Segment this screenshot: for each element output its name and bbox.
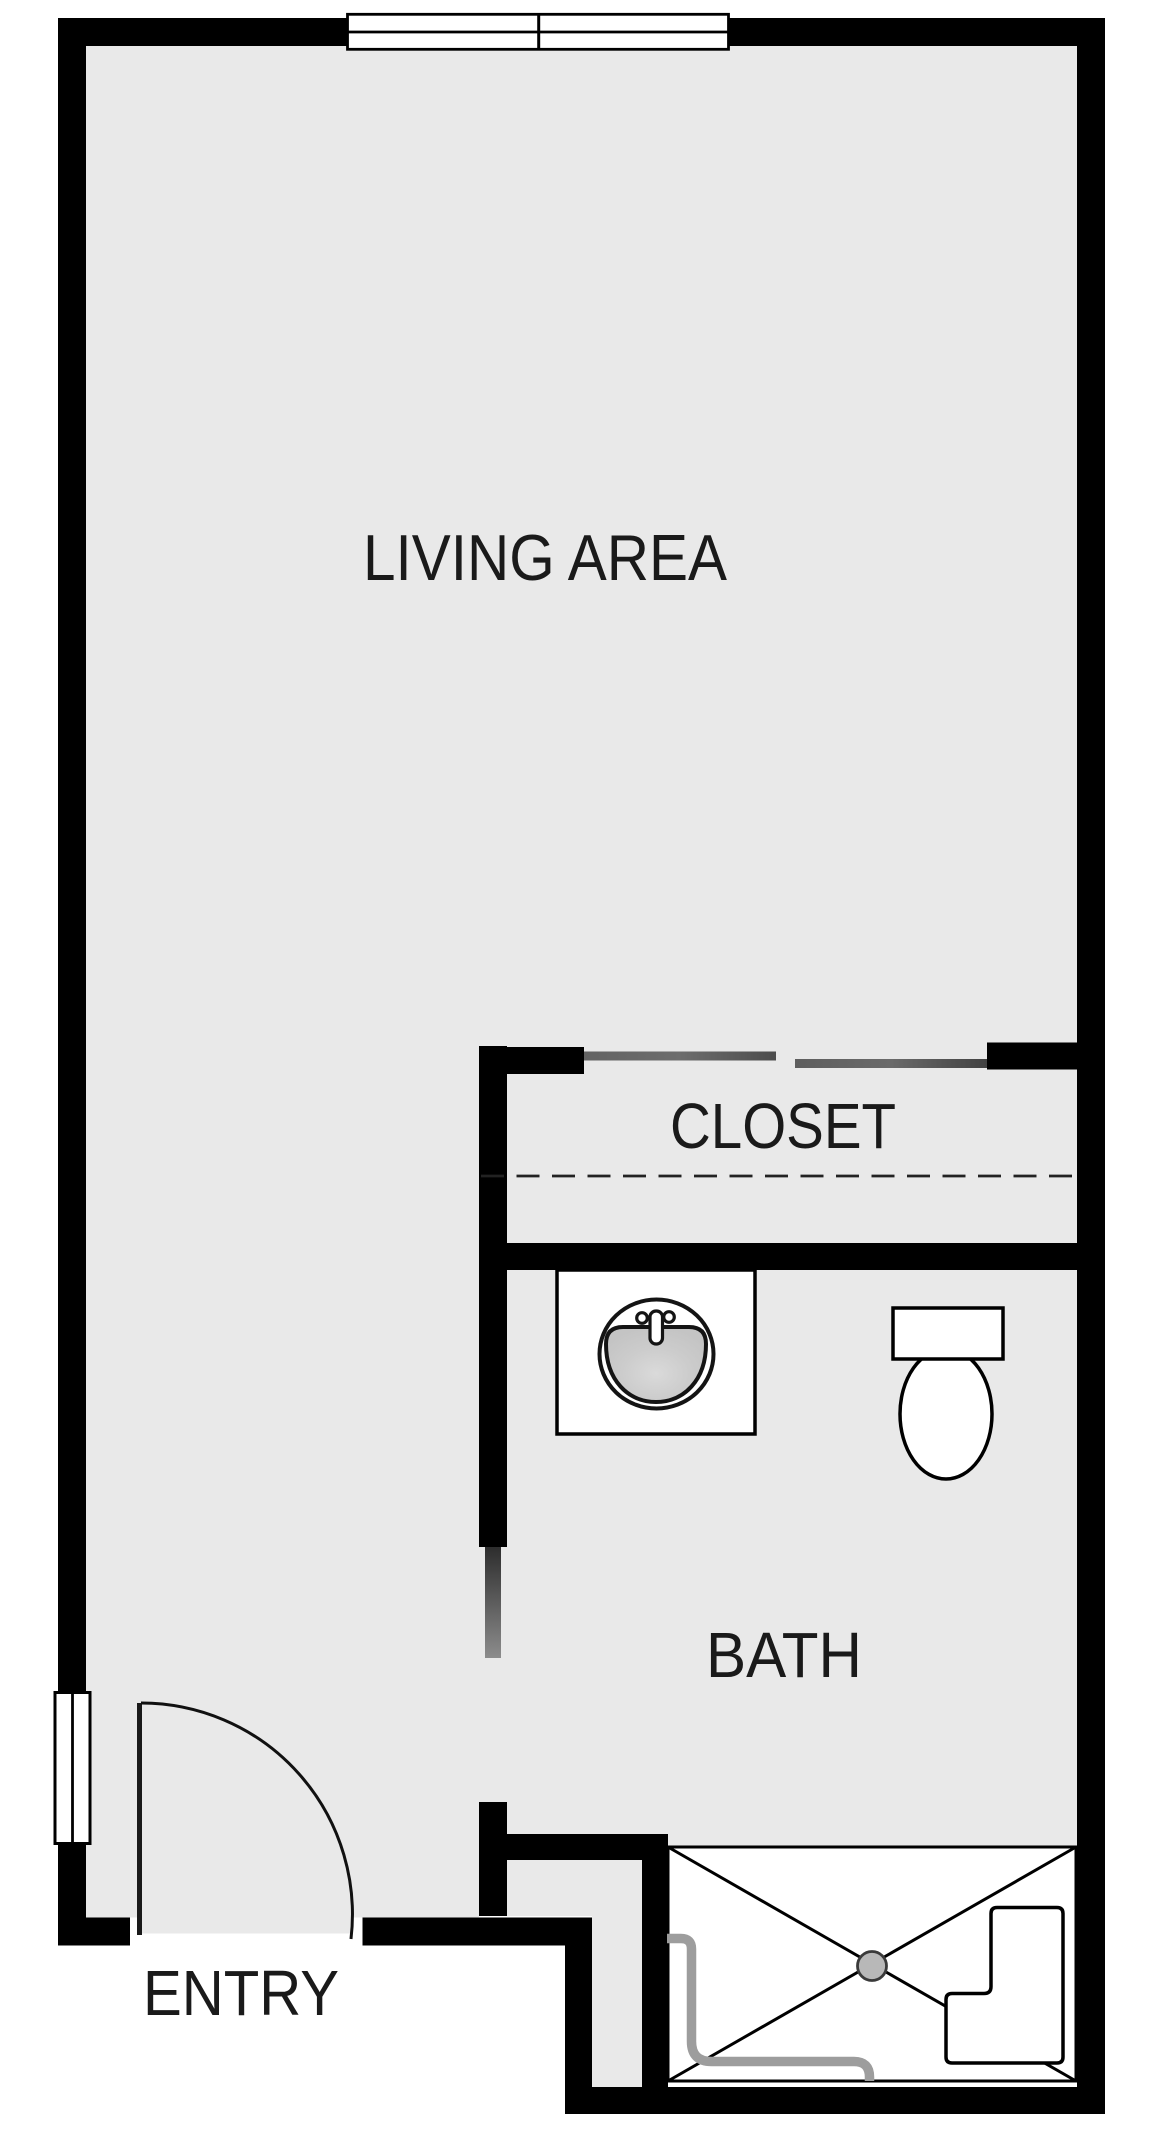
svg-text:LIVING AREA: LIVING AREA: [363, 521, 728, 594]
svg-text:ENTRY: ENTRY: [143, 1957, 339, 2029]
svg-text:BATH: BATH: [706, 1619, 862, 1691]
svg-text:CLOSET: CLOSET: [670, 1090, 896, 1162]
